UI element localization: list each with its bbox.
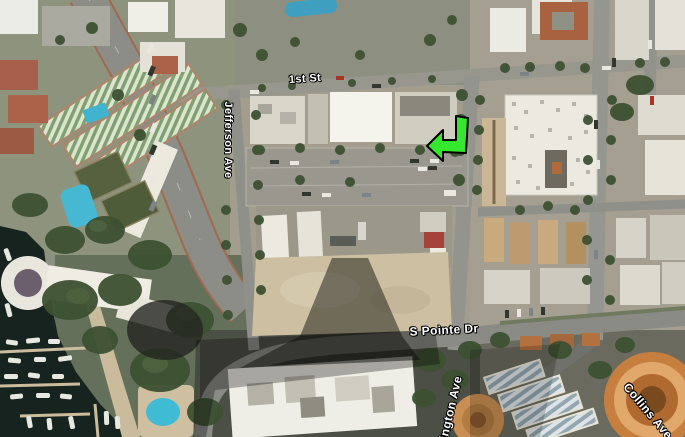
satellite-imagery xyxy=(0,0,685,437)
street-label-jefferson-ave: Jefferson Ave xyxy=(222,101,234,178)
satellite-map[interactable]: 1st St Jefferson Ave S Pointe Dr Washing… xyxy=(0,0,685,437)
pool-south xyxy=(146,398,180,426)
street-label-1st-st: 1st St xyxy=(288,72,321,86)
parking-lot xyxy=(246,148,468,206)
white-roof-building xyxy=(330,92,392,142)
